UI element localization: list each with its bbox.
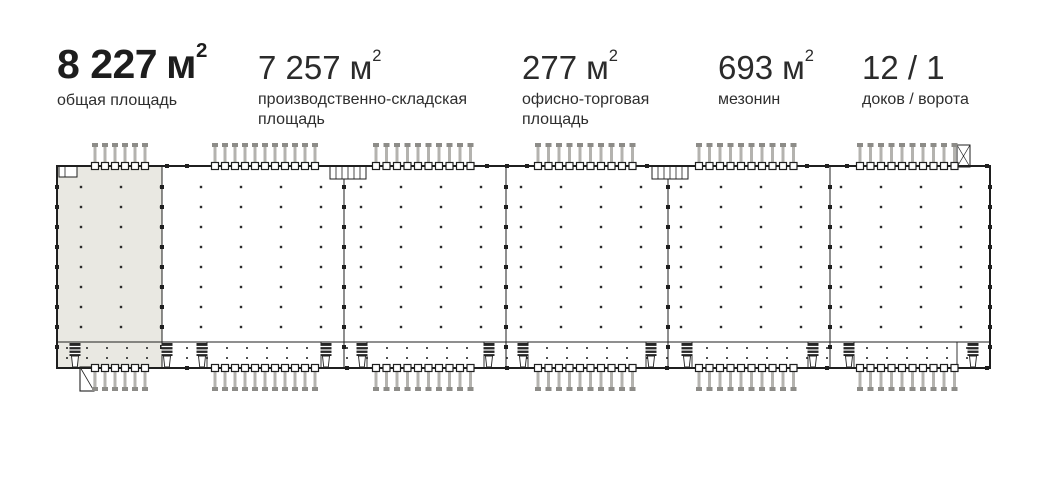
plan-wall-marks: [55, 164, 992, 370]
floor-plan-svg: [0, 0, 1053, 496]
warehouse-plan-page: 8 227м2 общая площадь 7 257м2 производст…: [0, 0, 1053, 496]
plan-entry-door: [59, 166, 77, 177]
floor-plan: [0, 0, 1053, 496]
plan-outer-wall: [57, 166, 990, 368]
plan-section-dividers: [160, 166, 832, 368]
plan-dock-levellers: [70, 343, 979, 367]
plan-ramp-box: [957, 145, 970, 167]
plan-shaded-section: [57, 166, 162, 368]
